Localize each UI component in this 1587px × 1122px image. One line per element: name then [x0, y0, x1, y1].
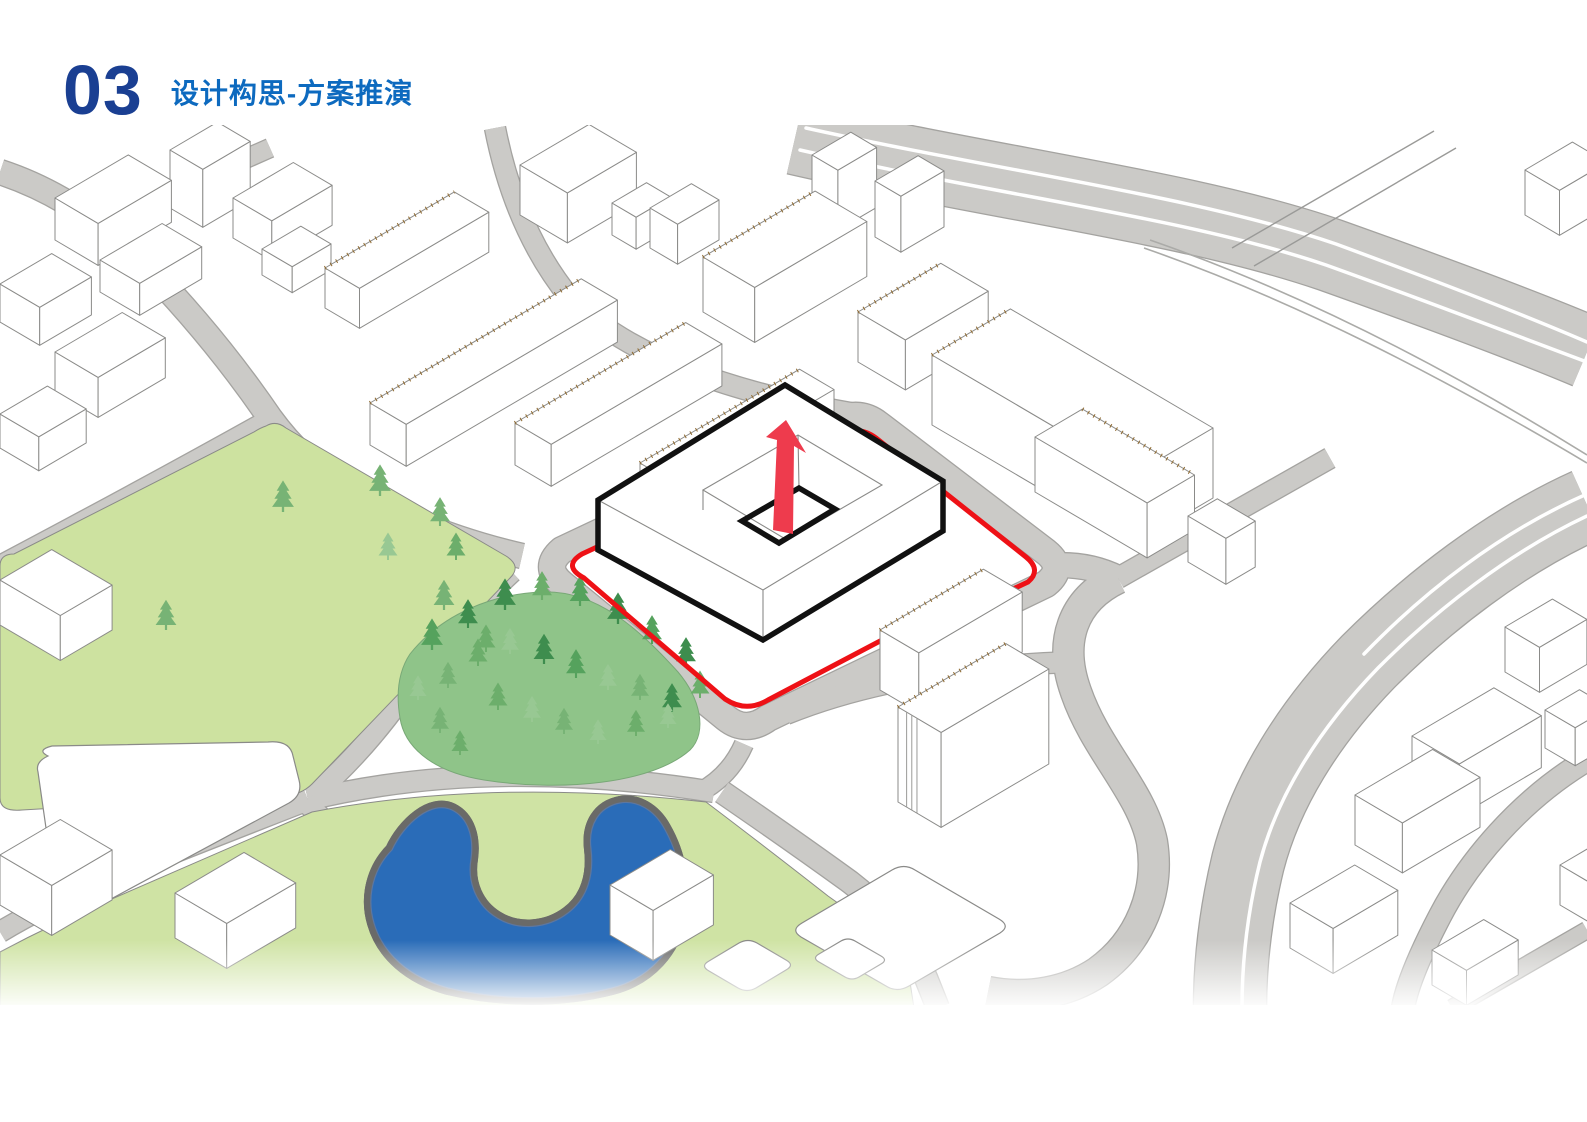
bottom-fade [0, 940, 1587, 1010]
city-illustration [0, 122, 1587, 1010]
road [700, 744, 744, 792]
section-number: 03 [63, 58, 143, 122]
context-building [325, 192, 489, 328]
context-building [703, 191, 867, 342]
slide-header: 03 设计构思-方案推演 [63, 58, 413, 122]
site-axonometric-diagram [0, 0, 1587, 1122]
context-building [0, 254, 91, 346]
section-title: 设计构思-方案推演 [171, 72, 413, 112]
bottom-margin [0, 1005, 1587, 1122]
context-building [1560, 845, 1587, 926]
context-building [1525, 142, 1587, 235]
context-building [1545, 690, 1587, 766]
context-building [1355, 749, 1480, 873]
context-building [1505, 599, 1587, 692]
